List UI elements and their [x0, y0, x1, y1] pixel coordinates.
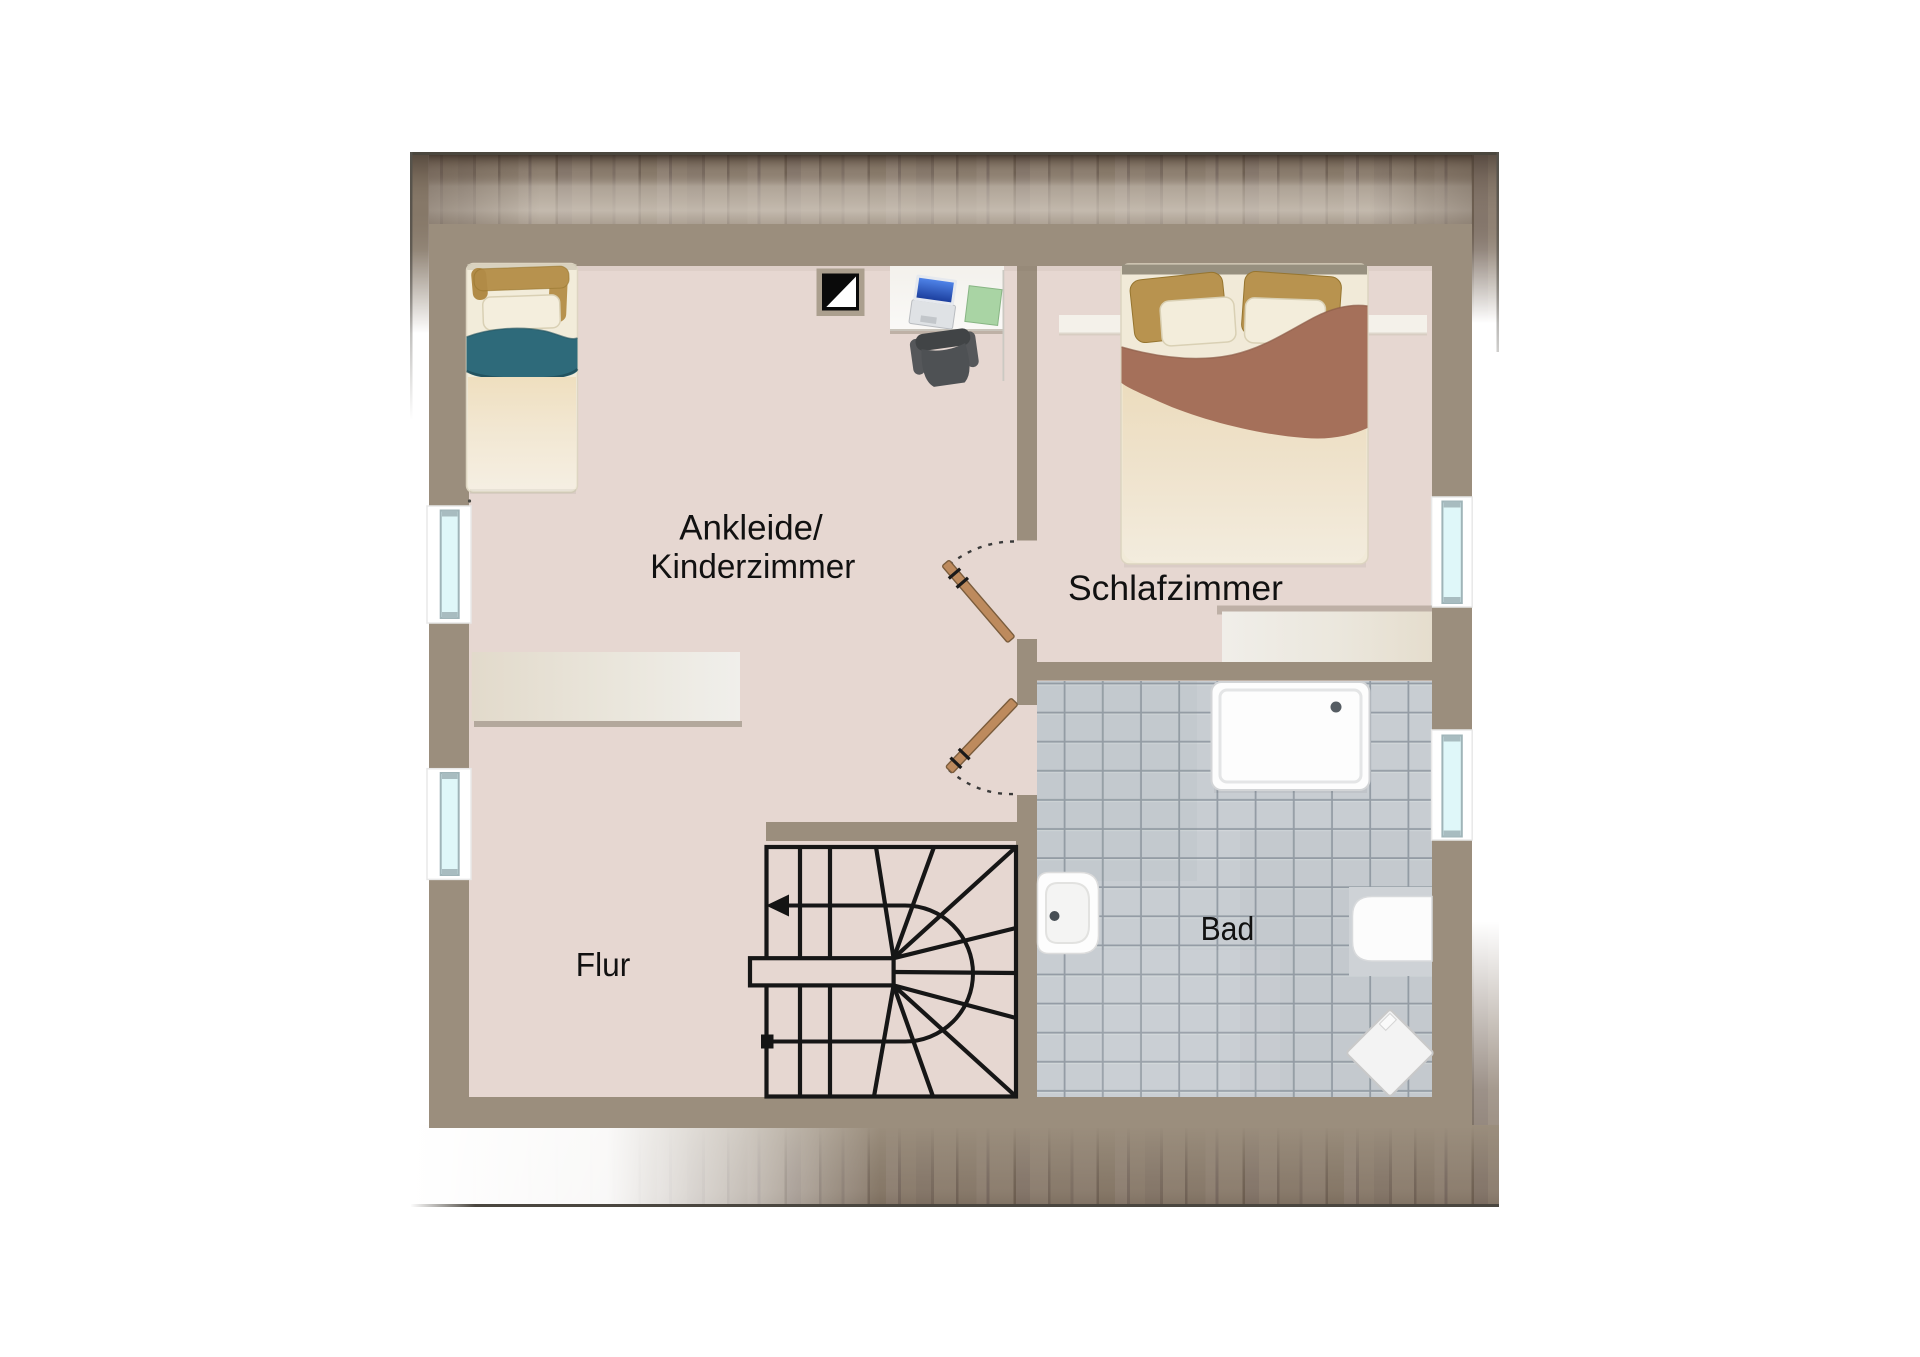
svg-text:Kinderzimmer: Kinderzimmer: [650, 548, 855, 586]
svg-text:Flur: Flur: [576, 947, 631, 984]
svg-text:Schlafzimmer: Schlafzimmer: [1068, 568, 1283, 608]
svg-text:Bad: Bad: [1201, 911, 1255, 948]
svg-text:Ankleide/: Ankleide/: [679, 509, 823, 548]
